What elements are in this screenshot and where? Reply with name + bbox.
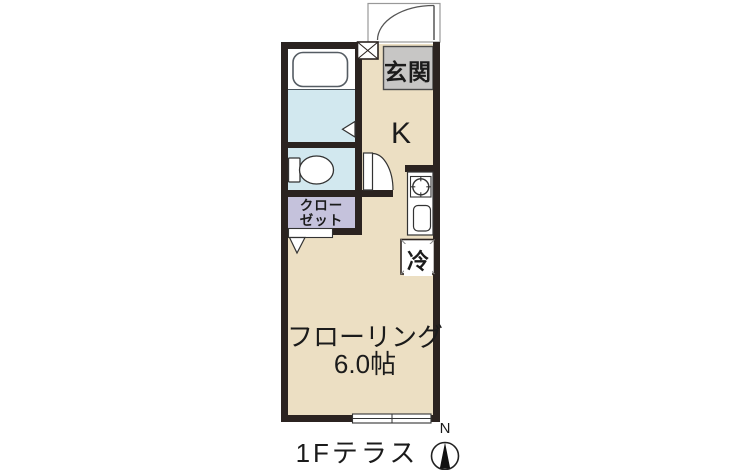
- refrigerator-label: 冷: [404, 244, 432, 276]
- bath-floor: [288, 89, 355, 142]
- closet-label-line2: ゼット: [289, 214, 354, 229]
- pipe-shaft-icon: [358, 42, 379, 59]
- wall-kitchen-stub: [405, 165, 433, 172]
- wall-bath-toilet: [281, 142, 362, 148]
- floor-plan: [0, 0, 730, 470]
- wall-toilet-bottom: [281, 190, 393, 197]
- sink-icon: [414, 206, 431, 232]
- toilet-icon: [289, 156, 334, 184]
- entrance-porch: [368, 4, 440, 43]
- wall-top: [281, 42, 358, 49]
- kitchen-counter: [408, 172, 434, 235]
- room-label-flooring: フローリング: [285, 324, 445, 350]
- closet-label-line1: クロー: [289, 199, 354, 214]
- north-label: N: [432, 420, 458, 437]
- compass-icon: [432, 443, 459, 470]
- wall-bath-right: [355, 42, 362, 235]
- window-symbol: [353, 414, 432, 423]
- bathtub-icon: [293, 53, 348, 87]
- kitchen-label: K: [383, 117, 419, 151]
- floor-plan-page: 玄関 K クロー ゼット 冷 フローリング 6.0帖 1Fテラス N: [0, 0, 730, 470]
- terrace-label: 1Fテラス: [286, 433, 428, 470]
- entrance-label: 玄関: [381, 53, 435, 87]
- room-label-size: 6.0帖: [285, 351, 445, 377]
- wall-bottom-left: [281, 415, 353, 422]
- room-label: フローリング 6.0帖: [285, 324, 445, 377]
